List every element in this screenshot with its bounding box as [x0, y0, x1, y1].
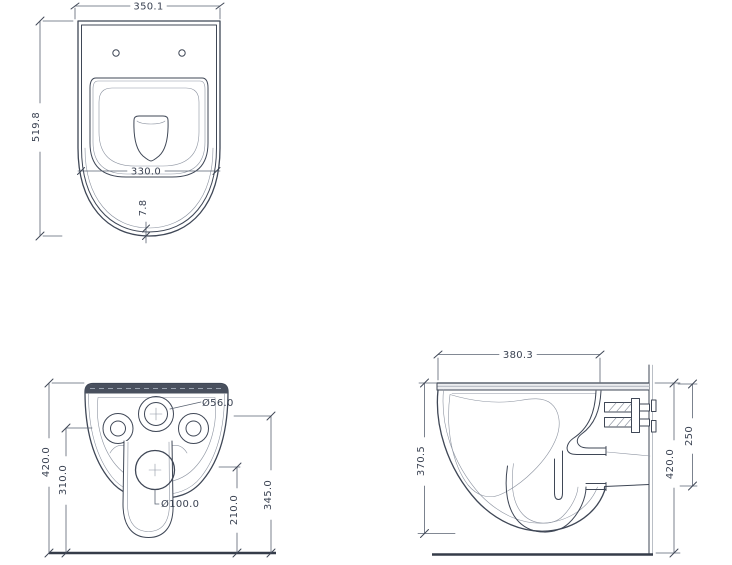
- body-inner-profile: [443, 390, 597, 523]
- flush-channel-inner: [577, 391, 606, 448]
- dim-label-body-height: 370.5: [416, 446, 427, 476]
- dim-label-top-to-bracket: 250: [684, 426, 695, 446]
- side-hole-right-inner: [186, 421, 201, 436]
- side-hole-left-inner: [111, 421, 126, 436]
- bolt-thru-lower: [640, 419, 650, 426]
- dim-side-overall-height: 420.0: [655, 379, 680, 557]
- bolt-cap-lower: [652, 421, 657, 433]
- bolt-thru-upper: [640, 404, 650, 411]
- dim-label-outlet-height: 210.0: [229, 495, 240, 525]
- mounting-bolt-assembly: [605, 399, 657, 433]
- flush-cover: [134, 116, 168, 161]
- section-reference-line: [607, 452, 650, 456]
- technical-drawing-page: 350.1 519.8 330.0 7.8: [0, 0, 732, 565]
- seat-opening: [99, 88, 199, 166]
- panel-scallop-right: [171, 445, 187, 453]
- dim-side-overall-depth: 380.3: [434, 350, 604, 382]
- dim-rear-outlet-height: 210.0: [219, 463, 241, 557]
- dim-label-side-hole-height: 310.0: [58, 465, 69, 495]
- bolt-cap-upper: [652, 400, 657, 412]
- rear-view: 420.0 310.0 210.0 345.0: [41, 379, 276, 557]
- dim-label-overall-depth: 519.8: [31, 112, 42, 142]
- side-view: 380.3 370.5 420.0: [416, 350, 697, 557]
- bolt-shaft-upper: [605, 403, 632, 413]
- side-hole-left-outer: [103, 414, 133, 444]
- dim-rear-inlet-height: 345.0: [234, 412, 275, 557]
- dim-side-top-to-bracket: 250: [678, 380, 697, 490]
- dim-top-overall-depth: 519.8: [31, 17, 73, 240]
- dim-label-side-depth: 380.3: [503, 350, 533, 361]
- dim-rear-side-hole-height: 310.0: [58, 424, 92, 557]
- bowl-cavity-outline: [449, 395, 560, 497]
- dim-top-overall-width: 350.1: [71, 2, 224, 20]
- top-view: 350.1 519.8 330.0 7.8: [31, 2, 224, 244]
- plan-inner-outline: [82, 25, 217, 232]
- bolt-shaft-lower: [605, 418, 632, 428]
- dim-label-inlet-height: 345.0: [263, 480, 274, 510]
- dim-label-outlet-diameter: Ø100.0: [161, 498, 199, 510]
- bolt-plate: [632, 399, 640, 433]
- seat-outline: [90, 78, 208, 177]
- technical-drawing-canvas: 350.1 519.8 330.0 7.8: [0, 0, 732, 565]
- trap-weir: [555, 451, 563, 500]
- dim-label-overall-width: 350.1: [133, 2, 163, 13]
- dim-label-rim-thickness: 7.8: [138, 200, 149, 217]
- flush-cover-inner-line: [137, 121, 165, 124]
- trap-inner: [512, 464, 578, 524]
- dim-label-rear-height: 420.0: [41, 447, 52, 477]
- dim-label-bowl-width: 330.0: [131, 167, 161, 178]
- label-inlet-diameter: Ø56.0: [170, 397, 234, 409]
- body-underside-line: [605, 485, 650, 487]
- mounting-hole-left: [113, 50, 119, 56]
- mounting-hole-right: [179, 50, 185, 56]
- leader-line: [170, 402, 201, 409]
- dim-label-side-height: 420.0: [665, 449, 676, 479]
- trap-outer: [506, 466, 586, 532]
- side-hole-right-outer: [179, 414, 209, 444]
- dim-label-inlet-diameter: Ø56.0: [202, 397, 234, 409]
